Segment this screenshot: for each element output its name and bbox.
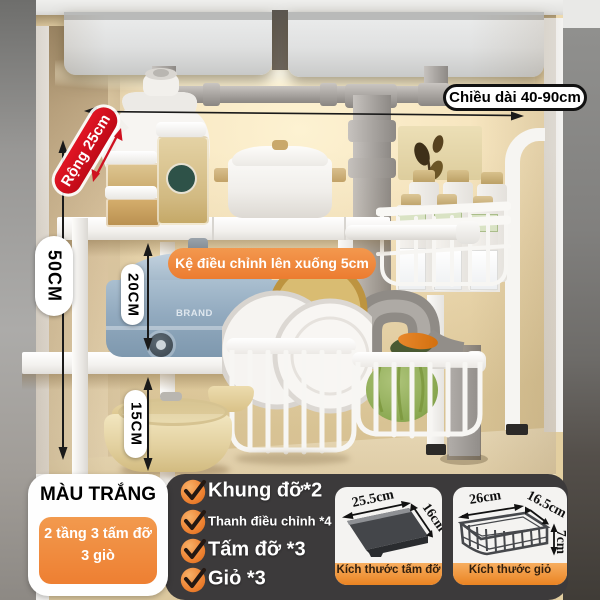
svg-text:7cm: 7cm xyxy=(554,530,567,555)
svg-text:26cm: 26cm xyxy=(468,488,502,508)
